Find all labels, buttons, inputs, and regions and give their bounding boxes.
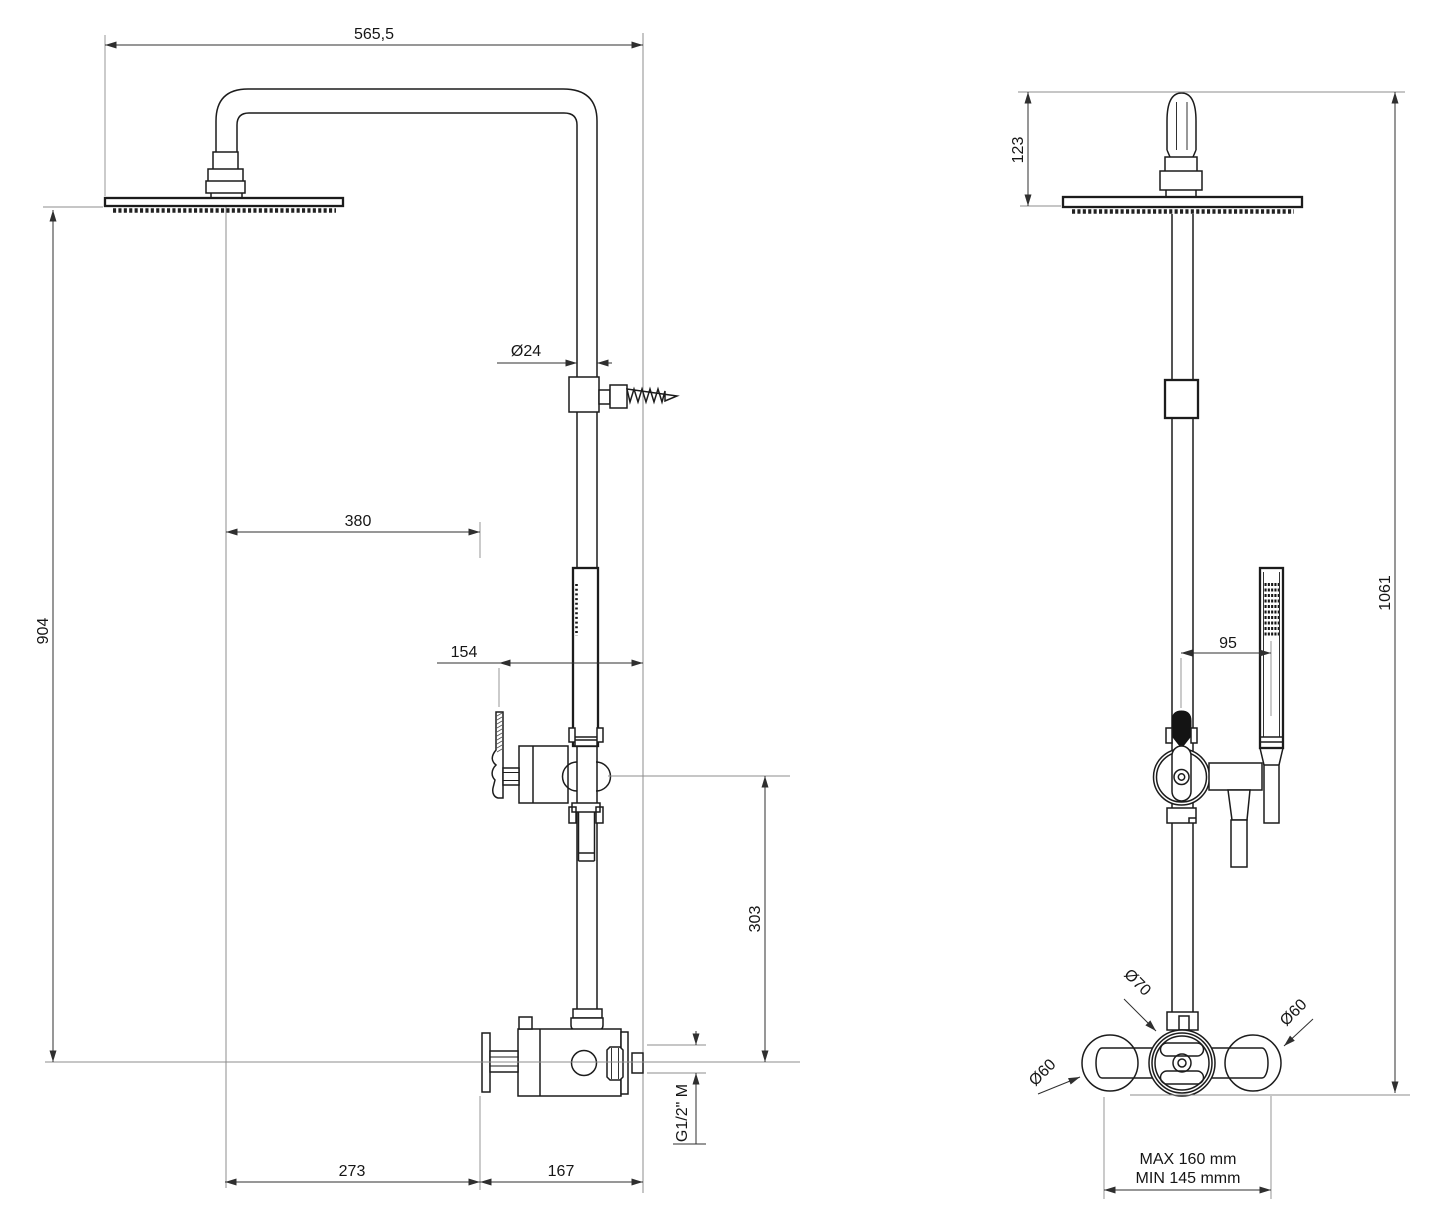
dim-overall-depth: 565,5 — [105, 26, 643, 196]
dim-holder-height-label: 303 — [747, 906, 764, 933]
holder-ball-joint — [563, 762, 611, 791]
handshower-side — [573, 568, 598, 746]
bracket-nib — [599, 390, 610, 404]
ext-line — [1181, 641, 1271, 716]
side-view — [45, 33, 800, 1193]
dim-depth-lower: 273 — [225, 1096, 480, 1190]
dim-head-height-label: 904 — [35, 618, 52, 645]
mixer-sphere-left — [1082, 1035, 1138, 1091]
column-front — [1063, 93, 1302, 1012]
dim-total-height-label: 1061 — [1377, 575, 1394, 611]
dim-outlet-thread: G1/2" M — [647, 1031, 706, 1144]
dim-connection-max-label: MAX 160 mm — [1140, 1151, 1237, 1168]
dim-connector-right: Ø60 — [1277, 996, 1313, 1046]
dim-handshower-offset: 95 — [1181, 635, 1271, 716]
front-view-dimensions: 123 95 1061 Ø70 Ø60 Ø60 MAX 160 mm MIN 1… — [1010, 92, 1410, 1199]
holder-knob-side — [519, 746, 568, 803]
ext-line — [647, 1045, 706, 1073]
arm-outer-contour — [216, 89, 597, 1009]
shower-arm-side — [216, 89, 597, 1009]
leader-line — [1124, 999, 1156, 1031]
mixer-connector-front — [1167, 1012, 1198, 1030]
front-view — [1063, 93, 1302, 1096]
holder-clamp-bottom — [569, 803, 603, 823]
holder-stem — [503, 768, 519, 785]
dim-knob-diameter-label: Ø70 — [1120, 966, 1153, 999]
mounting-screw — [627, 389, 677, 402]
mixer-hex-nut — [607, 1047, 623, 1080]
dim-connector-right-label: Ø60 — [1277, 996, 1310, 1029]
dim-depth-outlet: 167 — [480, 1163, 643, 1182]
mixer-top-port — [519, 1017, 532, 1029]
dim-total-height: 1061 — [1377, 92, 1395, 1093]
arm-front-highlight — [1177, 102, 1188, 150]
handshower-front — [1260, 568, 1283, 823]
dim-depth-lower-label: 273 — [339, 1163, 366, 1180]
wall-bracket-front — [1165, 380, 1198, 418]
overhead-shower-side — [105, 152, 343, 211]
holder-arm-front — [1209, 763, 1262, 790]
dim-head-to-wall: 380 — [226, 513, 480, 558]
holder-hook-front — [1172, 711, 1191, 748]
dim-depth-outlet-label: 167 — [548, 1163, 575, 1180]
arm-inner-contour — [237, 113, 577, 1009]
mixer-collar-top — [573, 1009, 602, 1018]
mixer-knob-outer — [1149, 1030, 1215, 1096]
dim-connector-left-label: Ø60 — [1026, 1056, 1059, 1089]
mixer-valve-side — [482, 1009, 643, 1096]
dim-connection-spacing: MAX 160 mm MIN 145 mmm — [1104, 1096, 1271, 1199]
dim-holder-depth: 154 — [437, 644, 643, 707]
head-connector — [206, 152, 245, 199]
bracket-nut — [610, 385, 627, 408]
mixer-sphere-right — [1225, 1035, 1281, 1091]
dim-pipe-diameter: Ø24 — [497, 343, 612, 363]
dim-knob-diameter: Ø70 — [1120, 966, 1156, 1031]
dim-holder-depth-label: 154 — [451, 644, 478, 661]
dim-head-height: 904 — [35, 207, 103, 1062]
mixer-ball-outlet — [572, 1051, 597, 1076]
dim-head-to-wall-label: 380 — [345, 513, 372, 530]
dim-handshower-offset-label: 95 — [1219, 635, 1237, 652]
dim-arm-rise-label: 123 — [1010, 137, 1027, 164]
hose-outlet-cone — [1228, 790, 1250, 820]
shower-column-technical-drawing: 565,5 Ø24 380 904 154 303 — [0, 0, 1445, 1221]
dim-connector-left: Ø60 — [1026, 1056, 1080, 1094]
head-plate-front — [1063, 197, 1302, 207]
handshower-handle-lines — [579, 812, 595, 861]
column-pipe — [1172, 214, 1193, 1012]
dim-pipe-diameter-label: Ø24 — [511, 343, 541, 360]
dim-outlet-thread-label: G1/2" M — [674, 1084, 691, 1142]
mixer-outlet-stub — [632, 1053, 643, 1073]
arm-front — [1167, 93, 1196, 157]
dim-connection-min-label: MIN 145 mmm — [1136, 1170, 1241, 1187]
head-plate — [105, 198, 343, 206]
holder-collar-front — [1167, 808, 1196, 823]
technical-drawing-page: 565,5 Ø24 380 904 154 303 — [0, 0, 1445, 1221]
bracket-body — [569, 377, 599, 412]
hose-tube — [1231, 820, 1247, 867]
dim-arm-rise: 123 — [1010, 92, 1061, 206]
wall-bracket-side — [569, 377, 677, 412]
mixer-valve-front — [1082, 1012, 1281, 1096]
dim-overall-depth-label: 565,5 — [354, 26, 394, 43]
handshower-handle-front — [1264, 765, 1279, 823]
slide-holder-front — [1154, 711, 1263, 867]
dim-holder-height: 303 — [608, 776, 790, 1062]
head-connector-front — [1160, 157, 1202, 198]
mixer-collar — [571, 1018, 603, 1030]
